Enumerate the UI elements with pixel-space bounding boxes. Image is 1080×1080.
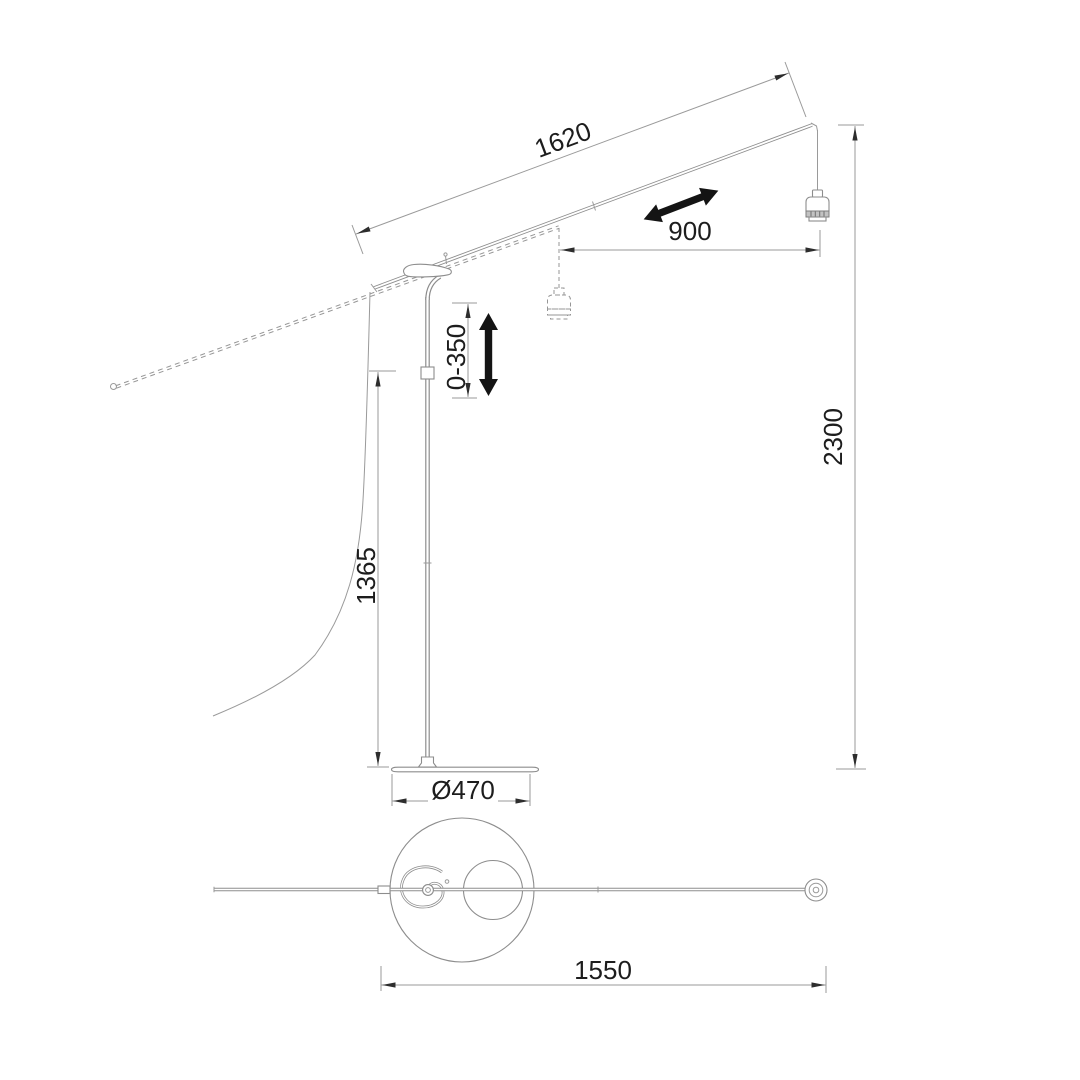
- side-view: 1620 900 0-350 1365: [111, 62, 867, 806]
- cable-end: [445, 880, 449, 884]
- pendant-socket-top: [805, 879, 827, 901]
- top-view: 1550: [214, 818, 827, 993]
- dim-slide-range: 900: [560, 216, 820, 257]
- dim-label-pole-height: 1365: [351, 547, 381, 605]
- lamp-technical-drawing: 1620 900 0-350 1365: [0, 0, 1080, 1080]
- dim-base-diameter: Ø470: [392, 774, 530, 806]
- telescope-lock: [421, 367, 434, 379]
- dim-total-height: 2300: [818, 125, 866, 769]
- base-plate: [392, 767, 539, 772]
- boom-end-cap-alt: [111, 384, 117, 390]
- boom-right-tip: [811, 123, 818, 131]
- dim-label-arm-length: 1620: [531, 115, 596, 163]
- pendant-socket-alt: [548, 288, 571, 319]
- power-cable: [213, 292, 370, 716]
- boom-top-connector: [378, 886, 390, 894]
- dim-label-total-height: 2300: [818, 408, 848, 466]
- pendant-socket: [806, 190, 829, 221]
- dim-pole-height: 1365: [351, 371, 396, 767]
- lamp-pole: [419, 277, 441, 768]
- lift-arrow-icon: [479, 313, 498, 396]
- dim-label-overall-length-top: 1550: [574, 955, 632, 985]
- pole-hub-top: [423, 885, 434, 896]
- boom-arm-top: [214, 886, 805, 894]
- dim-height-adjustment: 0-350: [441, 303, 477, 398]
- dim-label-slide-range: 900: [668, 216, 711, 246]
- boom-clamp-hook: [404, 253, 452, 277]
- pole-foot-collar: [419, 757, 437, 767]
- dim-arm-length: 1620: [352, 62, 806, 254]
- dim-label-height-adjustment: 0-350: [441, 324, 471, 391]
- dim-label-base-diameter: Ø470: [431, 775, 495, 805]
